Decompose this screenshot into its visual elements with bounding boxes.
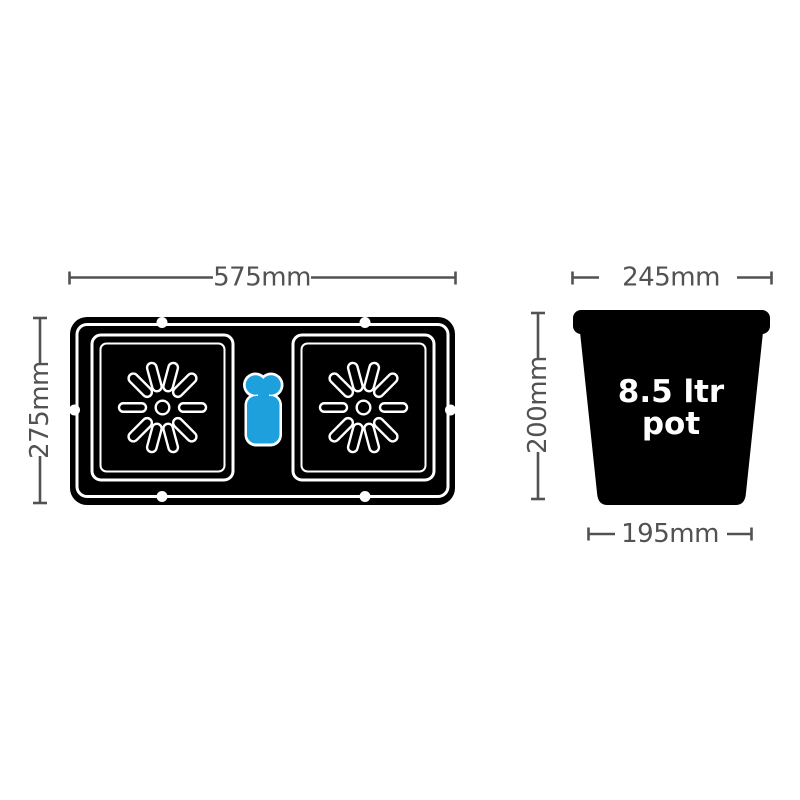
tray-width-dimension: 575mm <box>70 263 456 293</box>
tray-top-view <box>69 317 456 505</box>
pot-rim <box>573 310 770 334</box>
diagram-canvas: 575mm 275mm <box>0 0 800 800</box>
tray-depth-label: 275mm <box>25 361 55 459</box>
pot-volume-label-line1: 8.5 ltr <box>618 374 725 410</box>
lid-hole-marker <box>445 405 456 416</box>
valve-body <box>247 396 280 444</box>
tray-width-label: 575mm <box>213 263 311 293</box>
pot-height-dimension: 200mm <box>523 313 553 499</box>
pot-front-view: 8.5 ltr pot <box>573 310 770 505</box>
lid-hole-marker <box>69 405 80 416</box>
pot-top-width-label: 245mm <box>622 263 720 293</box>
pot-top-width-dimension: 245mm <box>573 263 772 293</box>
lid-hole-marker <box>157 317 168 328</box>
aquavalve-icon <box>243 373 284 447</box>
tray-depth-dimension: 275mm <box>25 318 55 503</box>
product-dimension-diagram: 575mm 275mm <box>0 0 800 800</box>
lid-hole-marker <box>360 491 371 502</box>
pot-height-label: 200mm <box>523 356 553 454</box>
lid-hole-marker <box>157 491 168 502</box>
pot-volume-label-line2: pot <box>642 406 700 442</box>
pot-base-width-label: 195mm <box>621 519 719 549</box>
pot-base-width-dimension: 195mm <box>589 519 752 549</box>
lid-hole-marker <box>360 317 371 328</box>
